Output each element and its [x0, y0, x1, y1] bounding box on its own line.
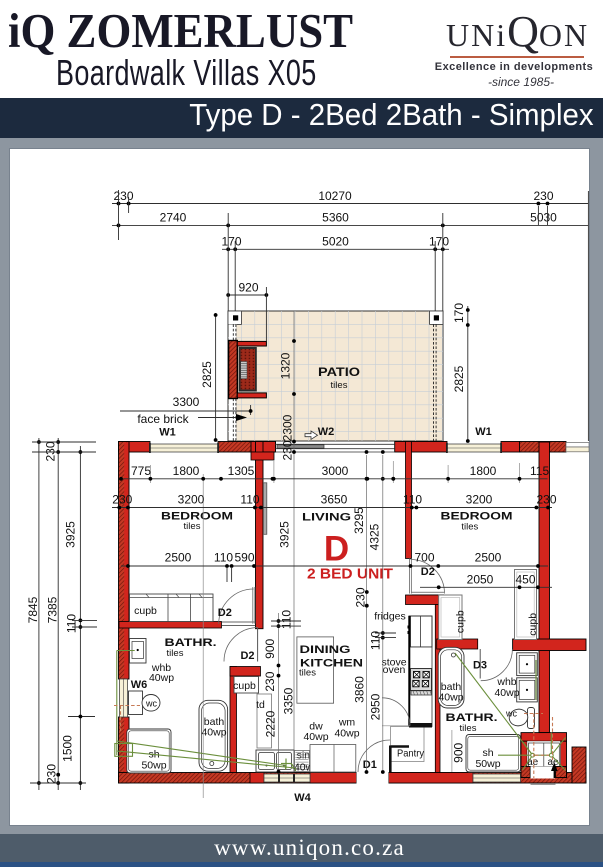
svg-text:40wp: 40wp: [201, 727, 226, 739]
svg-text:1800: 1800: [470, 464, 497, 478]
svg-text:tiles: tiles: [184, 521, 201, 532]
svg-text:D2: D2: [421, 566, 435, 578]
svg-text:700: 700: [414, 551, 434, 565]
svg-text:2 BED UNIT: 2 BED UNIT: [307, 566, 393, 583]
svg-text:3350: 3350: [282, 687, 296, 714]
svg-text:170: 170: [452, 303, 466, 323]
svg-text:775: 775: [131, 464, 151, 478]
svg-text:LIVING: LIVING: [302, 512, 351, 524]
svg-text:3200: 3200: [466, 493, 493, 507]
svg-text:7385: 7385: [46, 596, 60, 623]
svg-text:W4: W4: [294, 792, 311, 804]
svg-text:3295: 3295: [352, 507, 366, 534]
svg-text:230: 230: [533, 189, 553, 203]
svg-text:230: 230: [112, 493, 132, 507]
svg-text:5030: 5030: [530, 211, 557, 225]
svg-text:1305: 1305: [228, 464, 255, 478]
svg-text:tiles: tiles: [460, 723, 477, 734]
svg-text:3650: 3650: [321, 493, 348, 507]
svg-text:W6: W6: [131, 679, 148, 691]
svg-text:230: 230: [536, 493, 556, 507]
svg-text:110: 110: [214, 551, 233, 565]
svg-text:D2: D2: [240, 650, 254, 662]
svg-text:40wp: 40wp: [494, 687, 519, 699]
svg-text:2300: 2300: [281, 414, 295, 441]
svg-text:450: 450: [515, 573, 535, 587]
svg-text:face brick: face brick: [137, 412, 189, 426]
svg-text:2825: 2825: [452, 365, 466, 392]
svg-text:D3: D3: [473, 660, 487, 672]
svg-text:170: 170: [429, 235, 449, 249]
svg-text:tiles: tiles: [461, 522, 478, 533]
svg-text:tiles: tiles: [299, 668, 316, 679]
svg-text:cupb: cupb: [527, 613, 539, 636]
svg-text:230: 230: [281, 440, 295, 460]
svg-text:td: td: [256, 699, 265, 711]
svg-text:50wp: 50wp: [475, 758, 500, 770]
svg-text:3925: 3925: [278, 521, 292, 548]
svg-text:50wp: 50wp: [141, 760, 166, 772]
svg-text:230: 230: [44, 441, 58, 461]
svg-text:1500: 1500: [61, 735, 75, 762]
svg-text:PATIO: PATIO: [318, 367, 360, 379]
svg-text:W1: W1: [475, 426, 492, 438]
svg-text:D: D: [324, 530, 349, 569]
svg-text:40wp: 40wp: [149, 672, 174, 684]
svg-text:4325: 4325: [368, 523, 382, 550]
svg-text:2740: 2740: [160, 211, 187, 225]
svg-text:1800: 1800: [173, 464, 200, 478]
svg-text:5360: 5360: [322, 211, 349, 225]
svg-text:7845: 7845: [26, 596, 40, 623]
svg-text:115: 115: [530, 464, 549, 478]
svg-text:tiles: tiles: [331, 380, 348, 391]
svg-text:110: 110: [240, 493, 259, 507]
svg-text:3000: 3000: [322, 464, 349, 478]
svg-text:wc: wc: [505, 709, 517, 719]
svg-text:590: 590: [234, 551, 254, 565]
svg-text:2500: 2500: [165, 551, 192, 565]
svg-text:2220: 2220: [264, 710, 278, 737]
svg-text:1320: 1320: [279, 352, 293, 379]
svg-text:W2: W2: [318, 426, 335, 438]
svg-text:2050: 2050: [467, 573, 494, 587]
svg-text:fridges: fridges: [374, 611, 406, 623]
svg-text:230: 230: [113, 189, 133, 203]
svg-text:W1: W1: [159, 427, 176, 439]
svg-text:230: 230: [45, 764, 59, 784]
svg-text:920: 920: [238, 281, 258, 295]
svg-text:2500: 2500: [475, 551, 502, 565]
svg-text:110: 110: [403, 493, 422, 507]
svg-text:cupb: cupb: [455, 610, 467, 633]
svg-text:wc: wc: [145, 698, 157, 708]
svg-text:cupb: cupb: [134, 605, 157, 617]
svg-text:3200: 3200: [178, 493, 205, 507]
svg-text:2825: 2825: [200, 361, 214, 388]
svg-text:110: 110: [65, 614, 79, 633]
svg-text:110: 110: [368, 631, 382, 650]
svg-text:40wp: 40wp: [438, 692, 463, 704]
svg-text:230: 230: [263, 671, 277, 691]
svg-text:170: 170: [221, 235, 241, 249]
svg-text:40wp: 40wp: [334, 728, 359, 740]
svg-text:Pantry: Pantry: [397, 748, 425, 760]
svg-text:ae: ae: [527, 757, 539, 768]
svg-text:230: 230: [354, 587, 368, 607]
svg-text:oven: oven: [383, 664, 406, 676]
svg-text:3300: 3300: [173, 395, 200, 409]
svg-text:40wp: 40wp: [303, 731, 328, 743]
svg-text:3860: 3860: [353, 676, 367, 703]
svg-text:10270: 10270: [318, 189, 352, 203]
svg-text:cupb: cupb: [233, 680, 256, 692]
svg-text:5020: 5020: [322, 235, 349, 249]
svg-text:2950: 2950: [369, 693, 383, 720]
svg-text:900: 900: [452, 742, 466, 762]
svg-text:900: 900: [263, 638, 277, 658]
svg-text:tiles: tiles: [167, 648, 184, 659]
svg-text:3925: 3925: [64, 521, 78, 548]
svg-text:DINING: DINING: [300, 644, 351, 656]
svg-text:D2: D2: [218, 607, 232, 619]
svg-text:D1: D1: [363, 759, 377, 771]
